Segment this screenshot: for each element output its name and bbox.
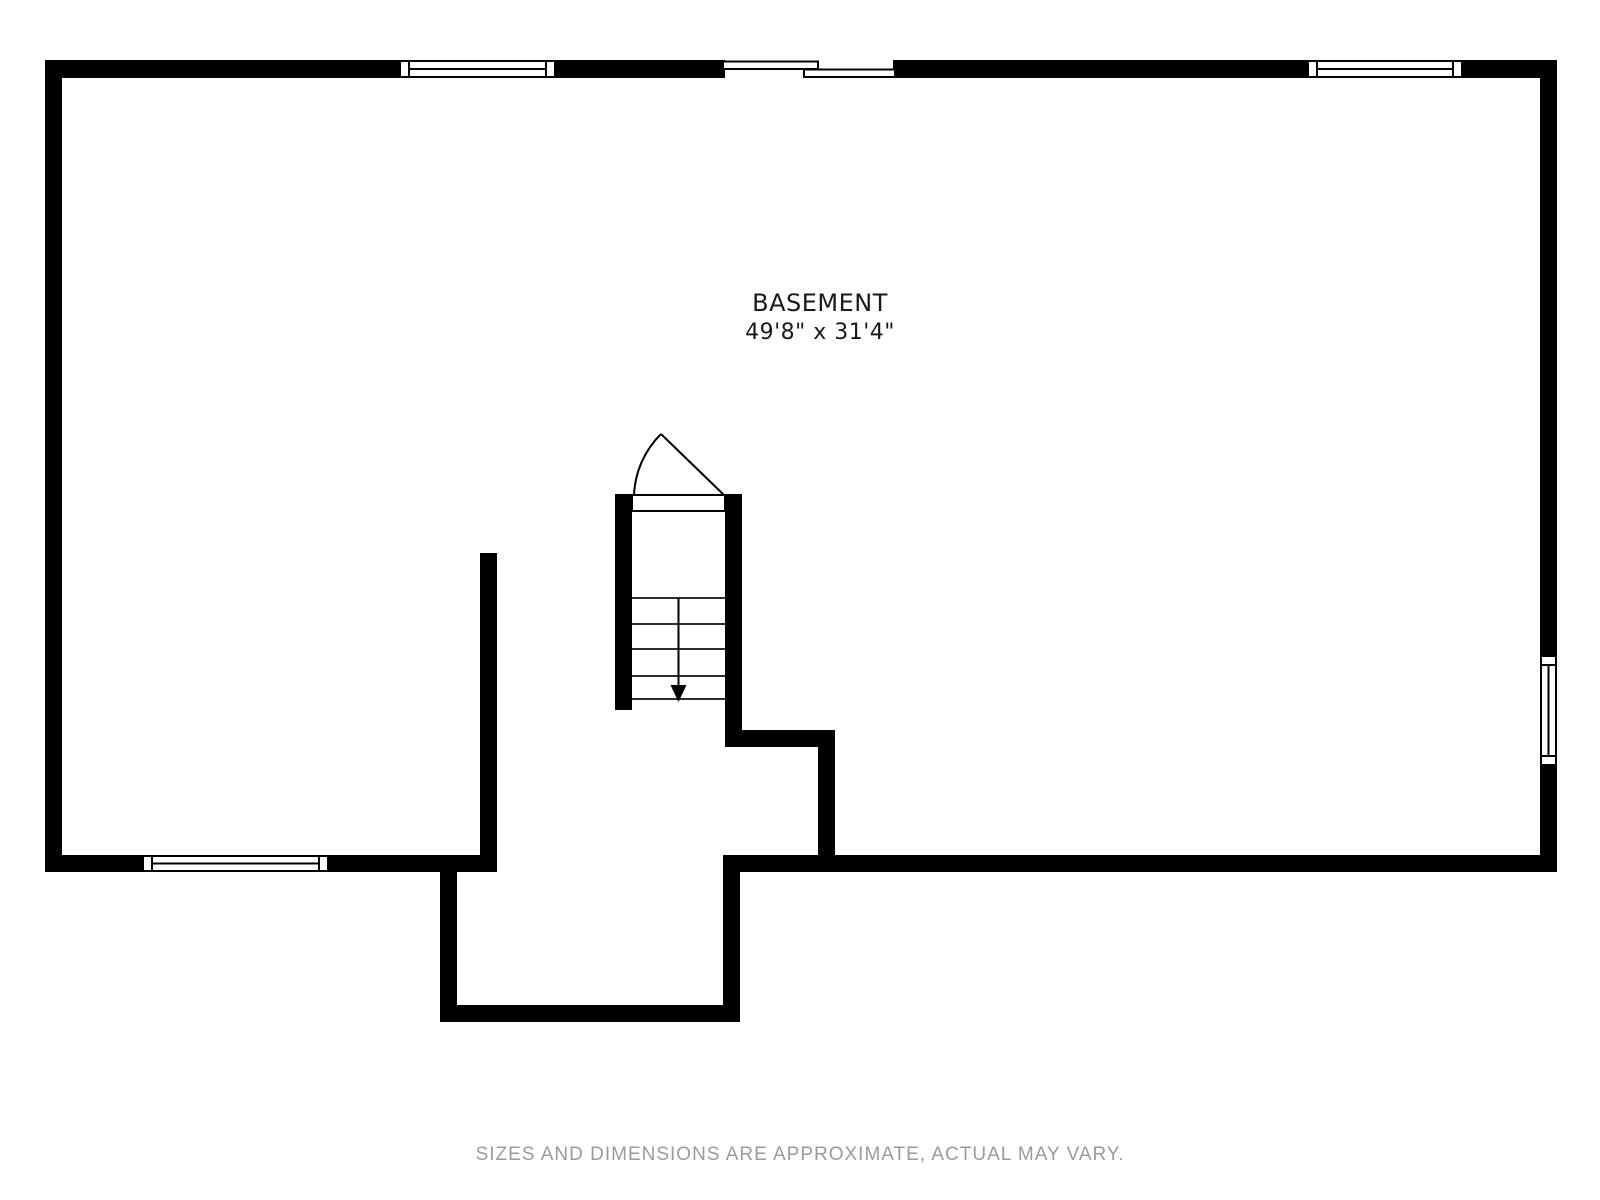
top-wall-right-window xyxy=(1308,61,1462,77)
bumpout-wall-right xyxy=(723,869,740,1022)
door-threshold xyxy=(632,495,725,511)
bumpout-wall-bottom xyxy=(440,1005,740,1022)
wall-bottom-left-seg1 xyxy=(45,855,143,872)
interior-walls xyxy=(480,494,835,872)
wall-bottom-left-seg2 xyxy=(328,855,497,872)
wall-left xyxy=(45,60,62,872)
sliding-door-panel-right xyxy=(804,70,895,78)
bottom-wall-left-window xyxy=(143,856,328,871)
door-leaf xyxy=(661,434,725,496)
outer-walls xyxy=(45,60,1557,1022)
room-label: BASEMENT xyxy=(752,289,888,317)
top-wall-left-window xyxy=(400,61,555,77)
wall-right-seg1 xyxy=(1540,60,1557,656)
disclaimer-text: SIZES AND DIMENSIONS ARE APPROXIMATE, AC… xyxy=(0,1144,1600,1166)
wall-top-seg1 xyxy=(45,60,400,78)
interior-wall-corridor-right xyxy=(818,730,835,872)
interior-wall-corridor-left xyxy=(480,553,497,872)
wall-top-seg3 xyxy=(893,60,1308,78)
room-dimensions: 49'8" x 31'4" xyxy=(745,320,895,345)
wall-bottom-right xyxy=(723,855,1557,872)
stair-wall-right xyxy=(725,494,742,747)
stair-wall-left xyxy=(615,494,632,710)
top-wall-sliding-door xyxy=(723,62,895,78)
staircase xyxy=(632,598,725,702)
stair-swing-door xyxy=(632,434,725,511)
bumpout-wall-left xyxy=(440,855,457,1022)
right-wall-window xyxy=(1541,656,1556,765)
floor-plan: BASEMENT 49'8" x 31'4" xyxy=(0,0,1600,1200)
sliding-door-panel-left xyxy=(723,62,818,70)
door-swing-arc-icon xyxy=(634,434,661,496)
wall-top-seg2 xyxy=(555,60,725,78)
